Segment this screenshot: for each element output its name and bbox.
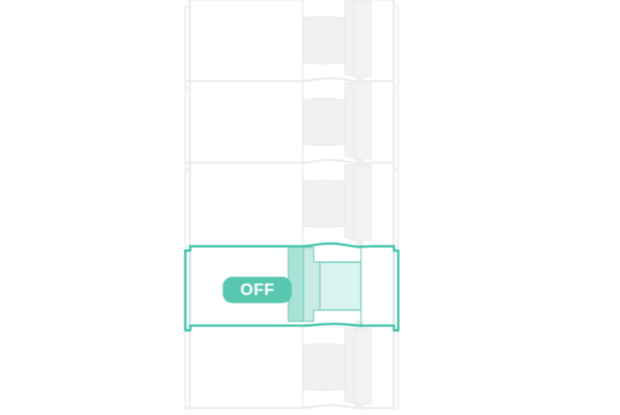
svg-text:OFF: OFF: [240, 281, 275, 299]
